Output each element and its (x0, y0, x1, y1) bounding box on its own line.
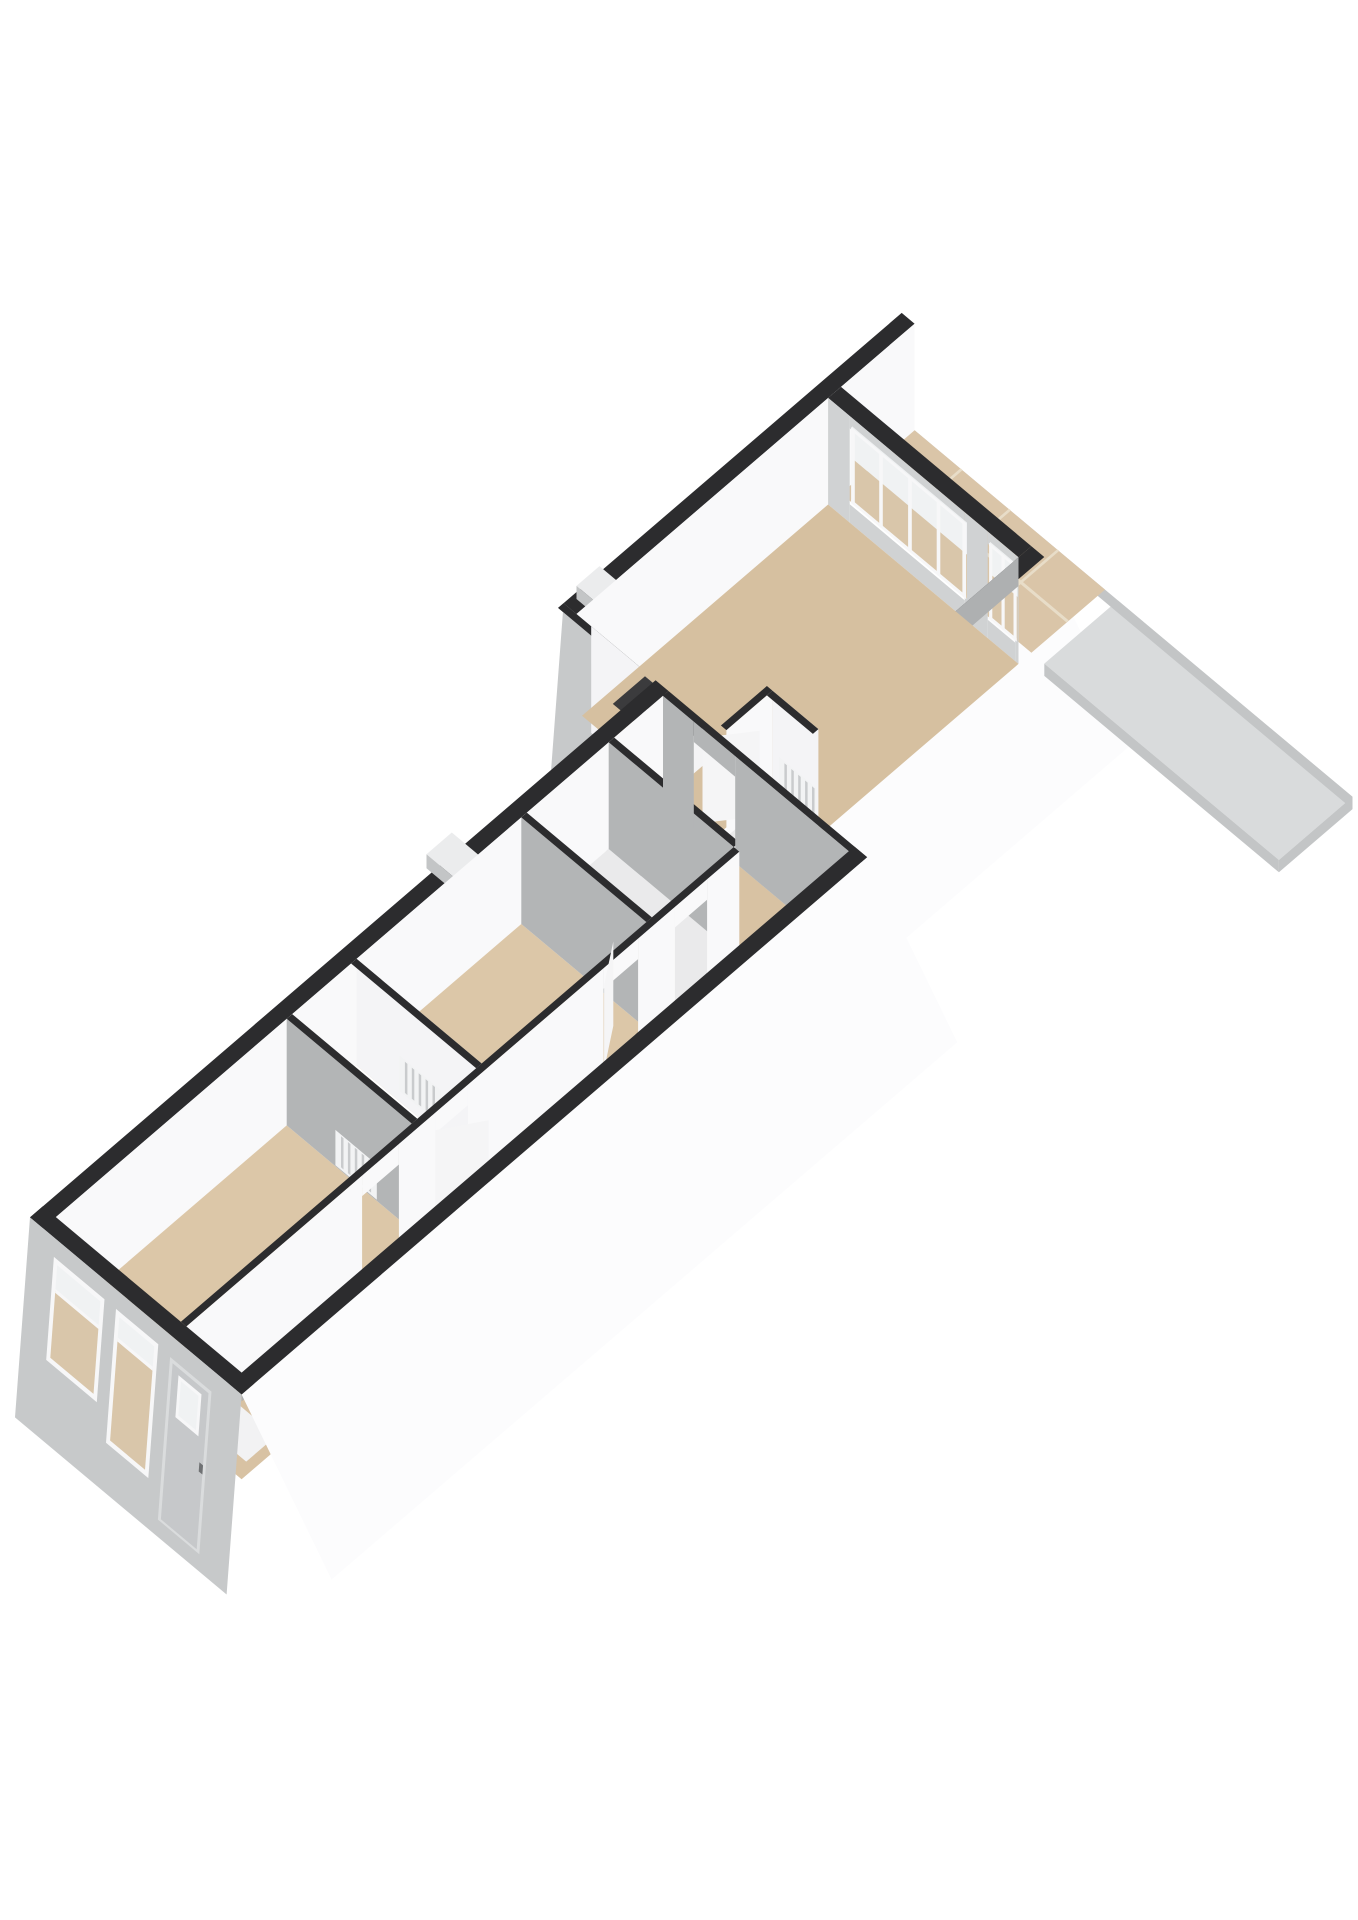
living-window-mullion (908, 477, 912, 552)
ne-wall-pier (828, 398, 850, 523)
living-window-mullion (937, 501, 941, 576)
radiator-fin (348, 1142, 351, 1175)
floor-plan-svg (0, 0, 1358, 1920)
living-window-mullion (879, 453, 883, 528)
radiator-fin (405, 1062, 408, 1095)
living-window-frame (851, 427, 855, 506)
radiator-fin (341, 1136, 344, 1169)
radiator-fin (426, 1079, 429, 1112)
floor-plan-page (0, 0, 1358, 1920)
radiator-fin (412, 1068, 415, 1101)
radiator-fin (419, 1073, 422, 1106)
living-window-frame (962, 520, 966, 599)
